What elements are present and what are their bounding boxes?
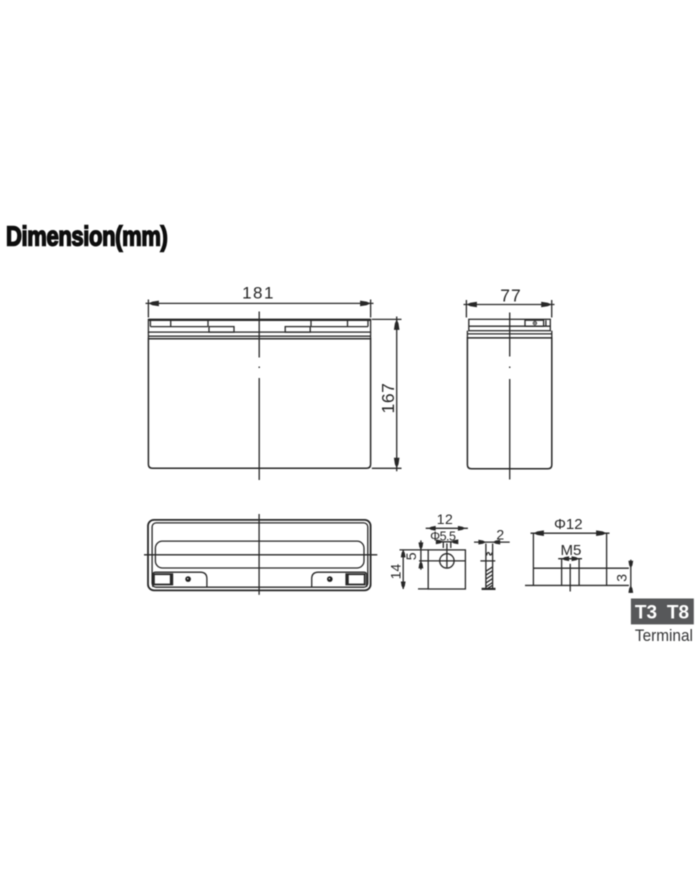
svg-text:Φ12: Φ12: [554, 516, 583, 533]
svg-text:2: 2: [496, 527, 504, 543]
svg-text:181: 181: [242, 284, 275, 303]
svg-text:3: 3: [614, 574, 630, 582]
svg-text:12: 12: [437, 511, 454, 527]
svg-text:T3: T3: [635, 603, 657, 624]
svg-text:T8: T8: [667, 603, 689, 624]
svg-text:Terminal: Terminal: [635, 627, 693, 645]
svg-text:167: 167: [378, 383, 398, 414]
svg-text:14: 14: [388, 564, 404, 580]
svg-text:Dimension(mm): Dimension(mm): [6, 221, 168, 252]
svg-text:M5: M5: [560, 542, 581, 559]
svg-text:77: 77: [500, 285, 521, 305]
